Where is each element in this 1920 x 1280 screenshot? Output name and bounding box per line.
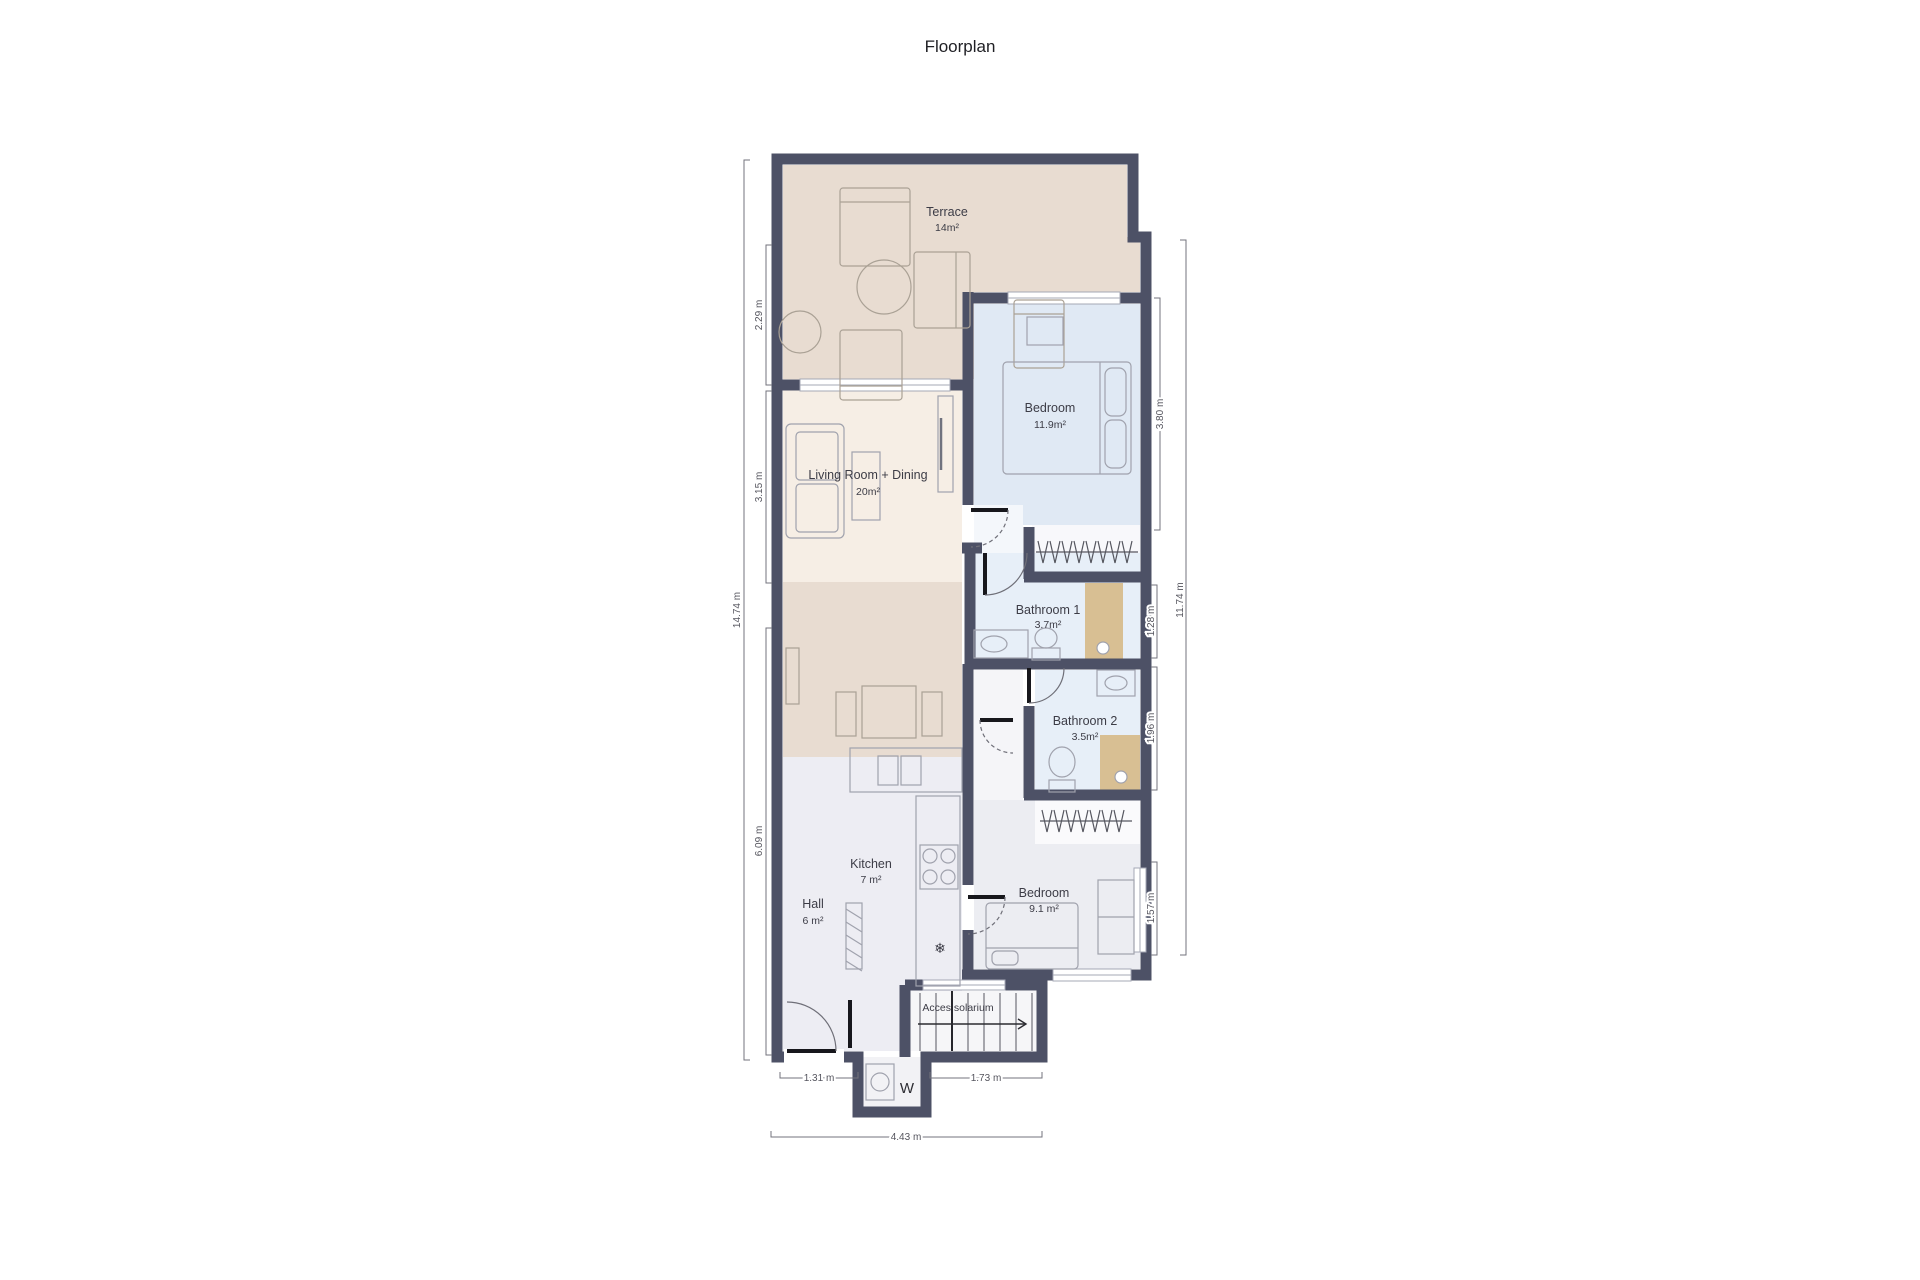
dim-label-173: 1.73 m [971, 1073, 1002, 1084]
dim-left-315 [766, 391, 772, 583]
terrace-living-window [800, 379, 950, 391]
terrace-label: Terrace [926, 205, 968, 219]
dim-label-196: 1.96 m [1146, 713, 1157, 744]
floorplan-page: Floorplan [0, 0, 1920, 1280]
stairs-floor [910, 991, 1037, 1051]
bathroom1-label: Bathroom 1 [1016, 603, 1081, 617]
terrace-area: 14m² [935, 222, 959, 234]
bedroom2-closet-floor [1035, 800, 1140, 844]
washer-label: W [900, 1080, 915, 1097]
bedroom2-area: 9.1 m² [1029, 903, 1059, 915]
bedroom2-label: Bedroom [1019, 886, 1070, 900]
shower-drain [1115, 771, 1127, 783]
living-area: 20m² [856, 486, 880, 498]
dim-left-229 [766, 245, 772, 385]
middle-dining-floor [783, 582, 962, 757]
bedroom2-right-window [1134, 868, 1146, 952]
dim-label-1474: 14.74 m [732, 592, 743, 628]
kitchen-area: 7 m² [861, 874, 883, 886]
fridge-icon: ❄ [934, 940, 946, 956]
page-title: Floorplan [925, 37, 996, 56]
dim-label-1174: 11.74 m [1175, 582, 1186, 617]
room-fills [783, 165, 1140, 1107]
dim-label-380: 3.80 m [1155, 399, 1166, 430]
floorplan-canvas: Floorplan [0, 0, 1920, 1280]
bathroom2-area: 3.5m² [1072, 731, 1099, 743]
dim-label-443: 4.43 m [891, 1132, 922, 1143]
bedroom2-bottom-window [1053, 969, 1131, 981]
dim-label-609: 6.09 m [754, 826, 765, 857]
kitchen-label: Kitchen [850, 857, 892, 871]
bathroom2-shower-floor [1100, 735, 1140, 793]
bathroom1-area: 3.7m² [1035, 619, 1062, 631]
stairs-label: Acces solarium [922, 1002, 993, 1014]
bedroom1-label: Bedroom [1025, 401, 1076, 415]
stairs-top-window [923, 980, 1005, 990]
shower-drain [1097, 642, 1109, 654]
hall-area: 6 m² [803, 915, 825, 927]
dim-label-128: 1.28 m [1146, 606, 1157, 637]
bedroom1-area: 11.9m² [1034, 419, 1066, 431]
dim-label-315: 3.15 m [754, 472, 765, 503]
living-label: Living Room + Dining [808, 468, 927, 482]
hall-label: Hall [802, 897, 824, 911]
dim-label-157: 1.57 m [1146, 893, 1157, 924]
dim-left-1474 [744, 160, 750, 1060]
bathroom2-label: Bathroom 2 [1053, 714, 1118, 728]
dim-label-229: 2.29 m [754, 300, 765, 331]
dim-left-609 [766, 628, 772, 1055]
dim-label-131: 1.31 m [804, 1073, 835, 1084]
